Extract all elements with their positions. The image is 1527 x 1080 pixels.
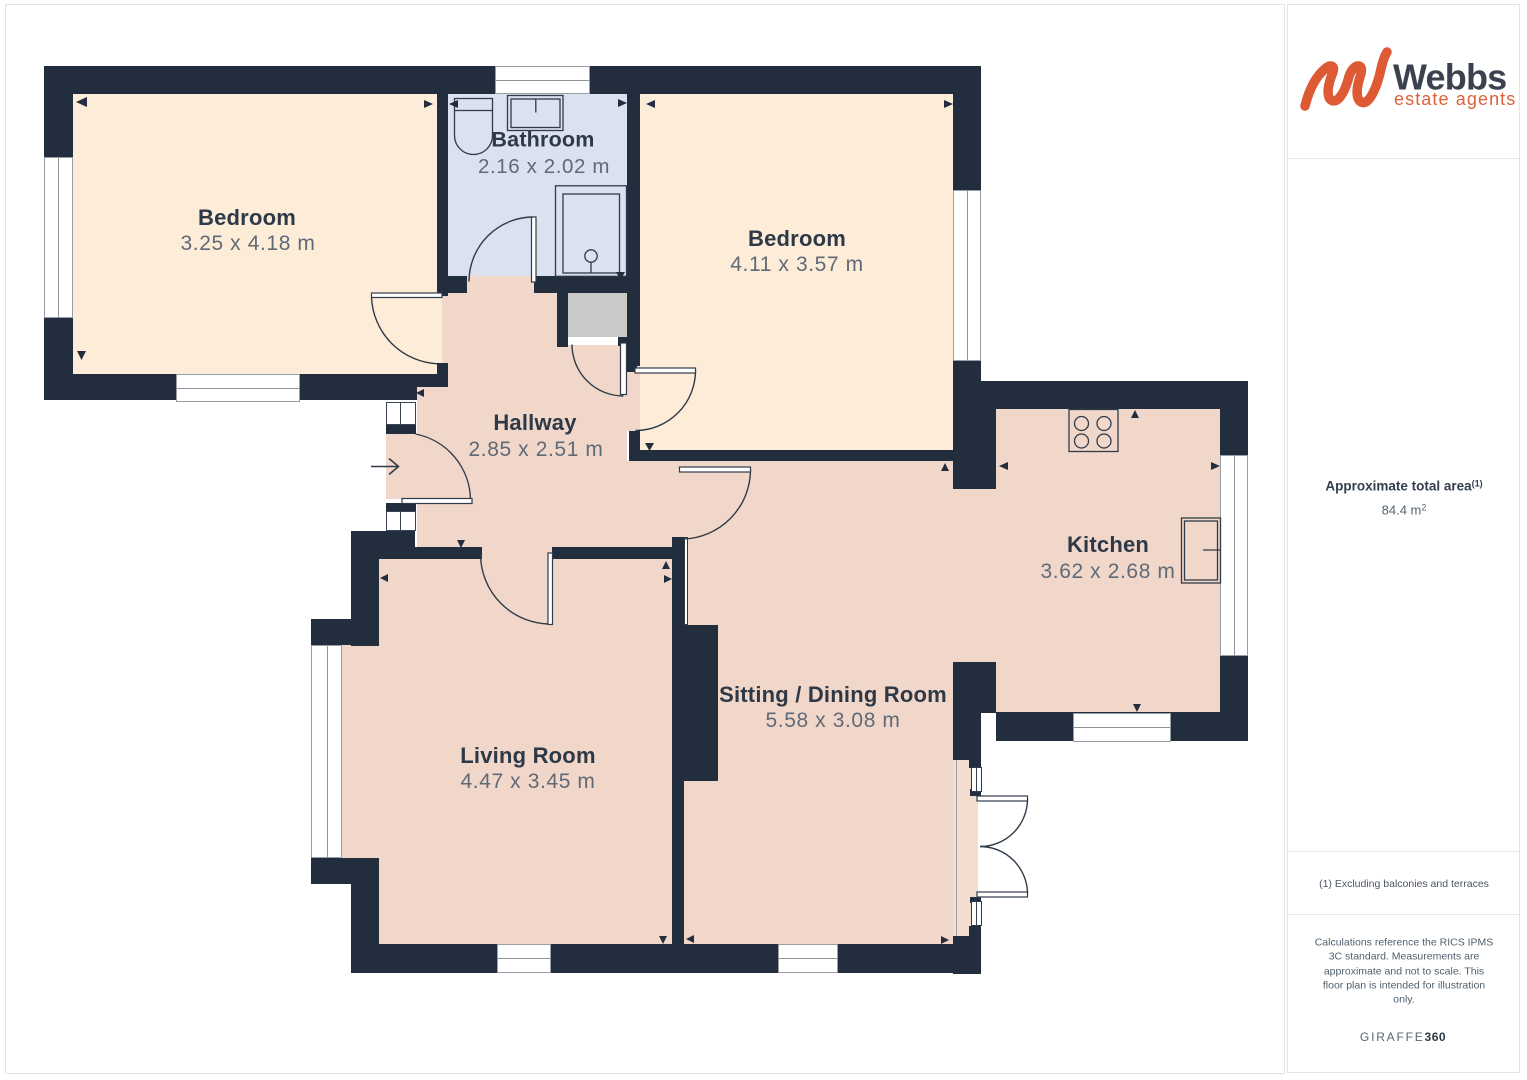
svg-text:estate agents: estate agents (1394, 89, 1516, 109)
